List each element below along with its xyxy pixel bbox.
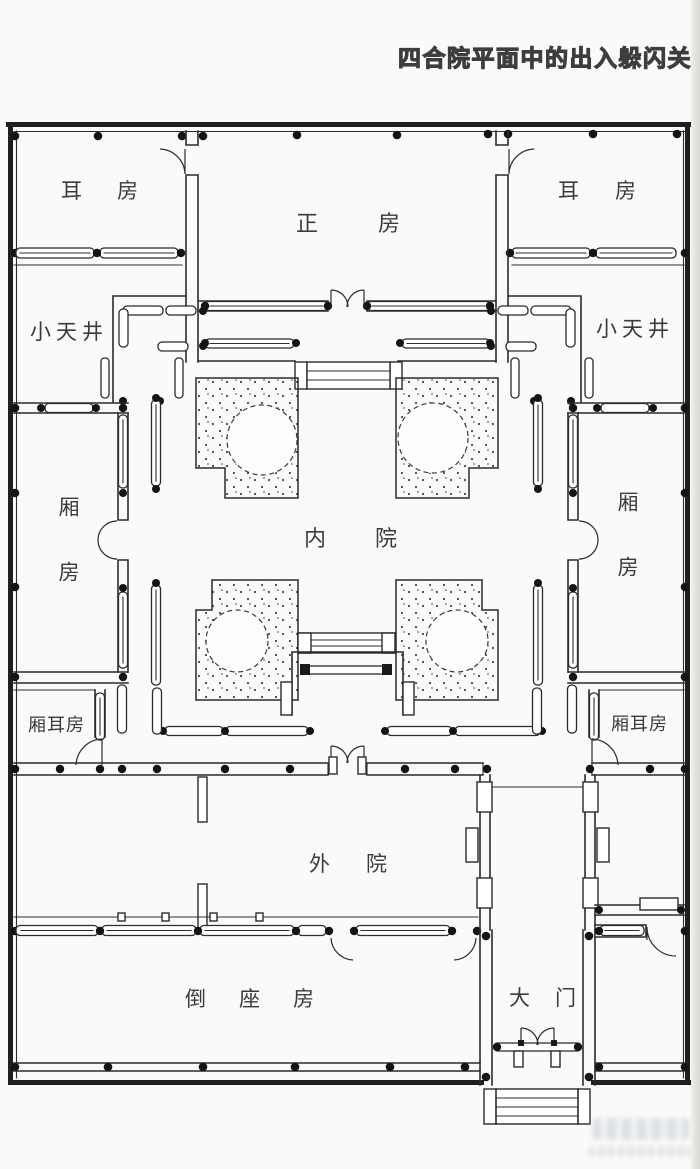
gate-side-room bbox=[595, 925, 684, 1071]
room-label-outer-court: 外院 bbox=[309, 854, 423, 875]
inner-gate bbox=[281, 633, 414, 715]
room-label-ear-room-left: 耳房 bbox=[61, 181, 173, 202]
room-label-side-ear-room-right: 厢耳房 bbox=[611, 715, 668, 733]
room-label-lightwell-right: 小天井 bbox=[596, 319, 674, 340]
ear-room-right bbox=[506, 248, 684, 265]
tree-icon bbox=[426, 610, 488, 672]
room-label-main-hall: 正房 bbox=[296, 213, 460, 235]
main-hall-veranda bbox=[198, 339, 496, 361]
divider-wall bbox=[14, 746, 686, 775]
tree-icon bbox=[227, 405, 297, 475]
main-gate bbox=[480, 930, 595, 1124]
room-label-reversed-seat-room: 倒座房 bbox=[185, 989, 347, 1010]
scanned-page: 四合院平面中的出入躲闪关系 耳房 正房 耳房 小天井 小天井 厢房 厢房 内院 … bbox=[0, 0, 700, 1169]
outer-wall bbox=[6, 122, 692, 1085]
ear-room-left bbox=[14, 248, 185, 265]
room-label-main-gate: 大门 bbox=[509, 988, 601, 1009]
corridor-side-room bbox=[595, 898, 685, 915]
scan-edge-strip bbox=[691, 0, 700, 1169]
room-label-inner-court: 内院 bbox=[304, 528, 446, 550]
main-hall-walls bbox=[160, 131, 534, 362]
tree-icon bbox=[398, 403, 468, 473]
room-label-side-ear-room-left: 厢耳房 bbox=[28, 716, 85, 734]
reversed-seat-room bbox=[14, 1063, 480, 1072]
room-label-side-room-left: 厢房 bbox=[57, 496, 78, 626]
room-label-side-room-right: 厢房 bbox=[616, 491, 637, 621]
page-title: 四合院平面中的出入躲闪关系 bbox=[398, 45, 700, 73]
entry-corridor bbox=[466, 775, 609, 930]
main-hall-door bbox=[331, 290, 364, 307]
main-hall-steps bbox=[295, 362, 402, 389]
lightwell-corridor-left bbox=[101, 296, 207, 405]
tree-icon bbox=[206, 610, 268, 672]
lightwell-corridor-right bbox=[487, 296, 593, 405]
room-label-lightwell-left: 小天井 bbox=[30, 322, 108, 343]
room-label-ear-room-right: 耳房 bbox=[558, 181, 672, 202]
